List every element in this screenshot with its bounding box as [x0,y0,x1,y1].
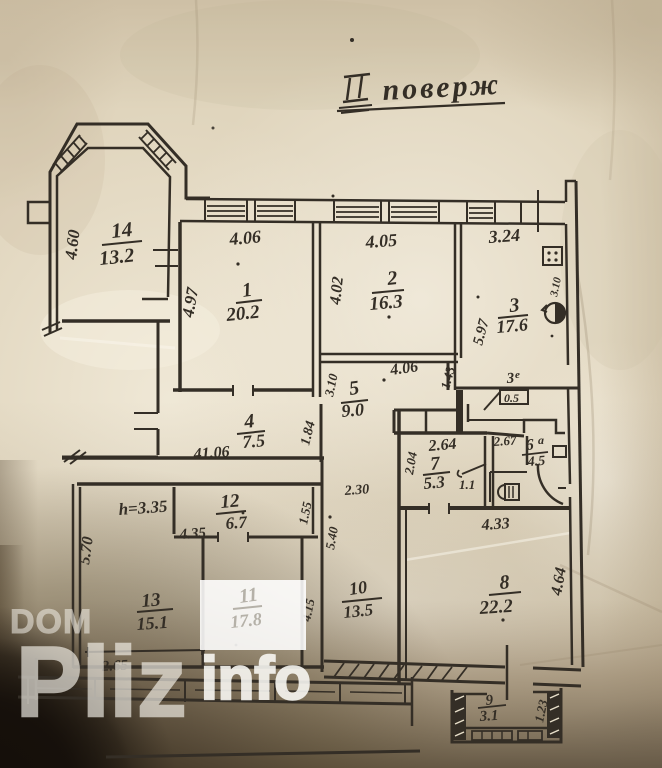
svg-text:16.3: 16.3 [369,291,404,315]
svg-text:12: 12 [220,490,241,513]
svg-text:4: 4 [242,410,255,433]
svg-text:2.67: 2.67 [492,432,517,449]
svg-text:h=3.35: h=3.35 [118,497,169,519]
svg-text:41.06: 41.06 [192,444,230,464]
svg-text:13: 13 [141,589,162,612]
svg-text:3: 3 [505,370,515,387]
svg-text:8: 8 [499,571,511,594]
svg-text:9.0: 9.0 [341,399,365,421]
svg-text:17.8: 17.8 [229,609,262,632]
svg-text:3.24: 3.24 [487,225,521,247]
svg-text:4.06: 4.06 [228,226,262,249]
svg-text:20.2: 20.2 [224,302,261,327]
svg-text:5.3: 5.3 [423,472,446,493]
svg-text:11: 11 [238,584,260,608]
svg-text:22.2: 22.2 [478,596,514,619]
svg-text:2.64: 2.64 [427,436,457,455]
svg-text:а: а [538,433,544,447]
svg-text:4.05: 4.05 [364,230,398,252]
svg-text:0.5: 0.5 [504,391,519,405]
svg-text:4.33: 4.33 [480,515,510,534]
svg-text:Pliz: Pliz [16,626,187,737]
svg-text:2.30: 2.30 [343,482,369,499]
svg-text:6.7: 6.7 [225,512,249,533]
svg-text:13.5: 13.5 [342,600,374,622]
svg-text:7.5: 7.5 [242,430,266,452]
svg-text:14: 14 [110,217,133,243]
svg-text:поверж: поверж [382,68,502,107]
svg-text:4.60: 4.60 [61,228,84,261]
svg-text:17.6: 17.6 [496,314,529,337]
svg-text:4.02: 4.02 [327,276,347,307]
svg-text:4.35: 4.35 [178,525,207,543]
svg-text:13.2: 13.2 [98,244,135,270]
svg-text:е: е [515,369,520,381]
svg-text:10: 10 [348,577,369,599]
svg-text:3: 3 [507,294,520,317]
svg-text:1.1: 1.1 [459,477,475,492]
svg-text:6: 6 [525,436,534,454]
svg-text:2: 2 [385,267,398,290]
svg-text:info: info [201,645,311,712]
svg-text:4.5: 4.5 [526,454,546,470]
svg-text:3.1: 3.1 [478,708,499,725]
